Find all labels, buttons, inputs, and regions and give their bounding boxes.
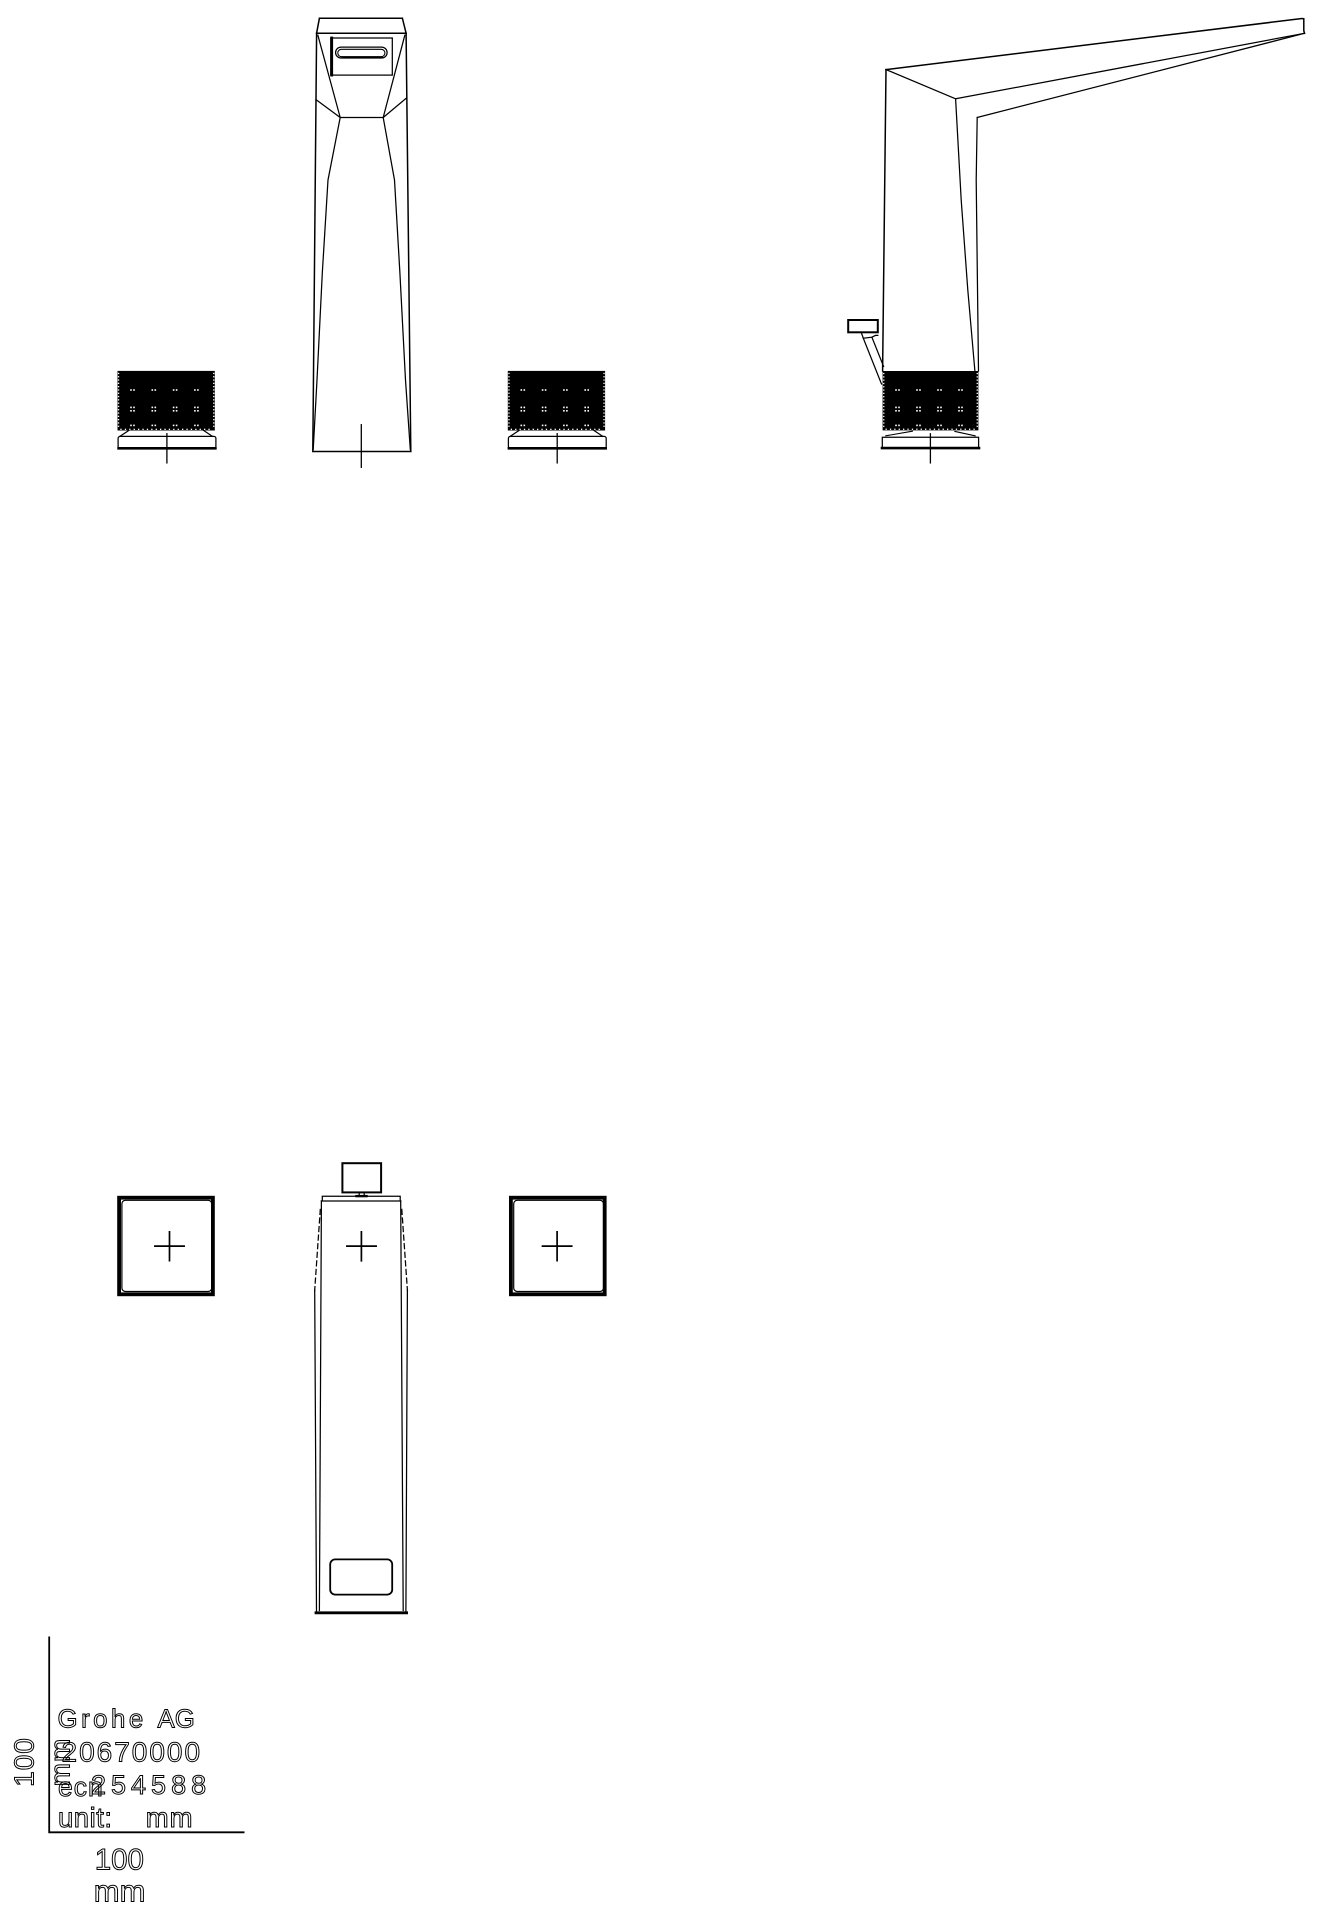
svg-text:254588: 254588 xyxy=(91,1770,211,1800)
svg-text:Grohe: Grohe xyxy=(58,1706,147,1734)
svg-text:100: 100 xyxy=(8,1737,39,1787)
svg-text:AG: AG xyxy=(158,1706,195,1734)
svg-text:mm: mm xyxy=(45,1738,76,1787)
svg-text:20670000: 20670000 xyxy=(62,1737,203,1768)
svg-text:unit:: unit: xyxy=(58,1802,112,1833)
svg-text:mm: mm xyxy=(146,1802,194,1833)
svg-text:mm: mm xyxy=(94,1874,146,1909)
svg-text:100: 100 xyxy=(95,1843,144,1876)
